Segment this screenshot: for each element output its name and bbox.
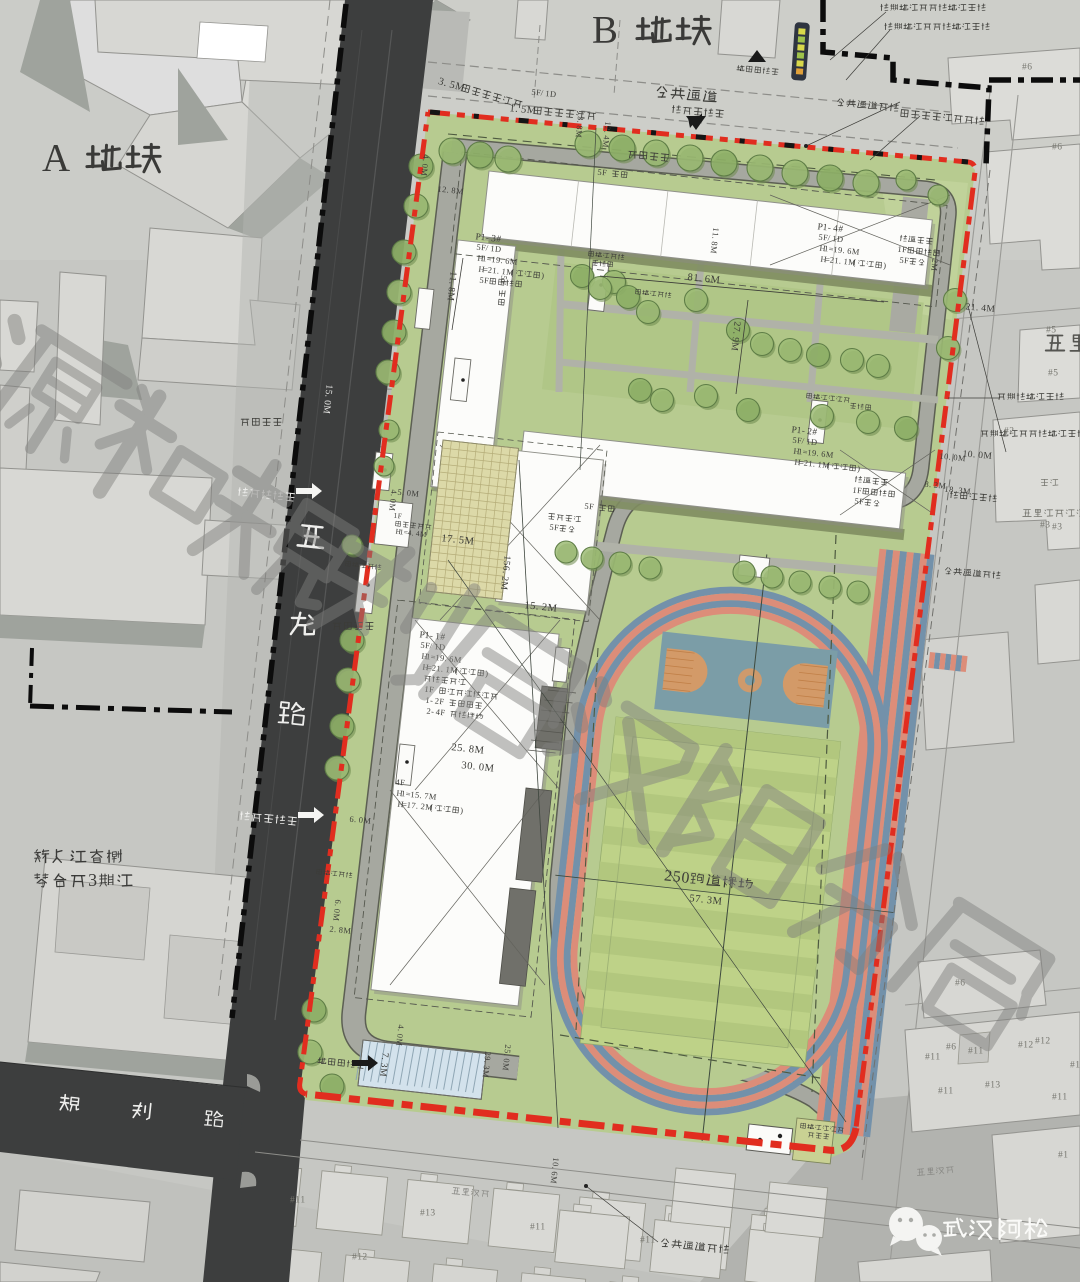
- svg-text:M: M: [729, 342, 740, 352]
- svg-text:M: M: [712, 896, 723, 908]
- svg-text:6: 6: [1057, 142, 1062, 152]
- svg-text:D: D: [811, 438, 818, 448]
- svg-text:D: D: [550, 90, 557, 100]
- svg-text:M: M: [456, 187, 465, 197]
- svg-text:M: M: [958, 454, 967, 464]
- svg-text:2: 2: [1028, 1040, 1033, 1050]
- svg-text:M: M: [377, 1068, 388, 1078]
- svg-text:M: M: [343, 926, 352, 936]
- svg-text:M: M: [986, 304, 996, 315]
- svg-text:3: 3: [995, 1080, 1000, 1090]
- svg-text:M: M: [363, 816, 372, 826]
- svg-text:2: 2: [1009, 426, 1014, 436]
- svg-text:M: M: [547, 603, 558, 615]
- svg-text:M: M: [501, 1063, 511, 1072]
- svg-text:M: M: [419, 168, 429, 177]
- svg-text:M: M: [929, 263, 939, 272]
- svg-text:A: A: [42, 136, 70, 179]
- svg-text:M: M: [387, 503, 397, 512]
- svg-text:1: 1: [650, 1235, 655, 1245]
- svg-text:D: D: [837, 235, 844, 245]
- svg-text:5: 5: [1051, 325, 1056, 335]
- svg-text:M: M: [601, 140, 611, 149]
- svg-text:1: 1: [1075, 1060, 1080, 1070]
- svg-text:M: M: [411, 489, 420, 499]
- svg-text:M: M: [710, 274, 721, 286]
- svg-text:1: 1: [935, 1052, 940, 1062]
- svg-text:M: M: [983, 451, 993, 462]
- svg-text:M: M: [331, 913, 341, 922]
- svg-text:M: M: [484, 763, 495, 775]
- svg-text:1: 1: [540, 1222, 545, 1232]
- svg-text:M: M: [709, 246, 719, 255]
- svg-text:1: 1: [1063, 1150, 1068, 1160]
- svg-text:D: D: [495, 245, 502, 255]
- svg-text:3: 3: [88, 870, 97, 890]
- svg-text:M: M: [394, 1038, 404, 1047]
- svg-text:6: 6: [951, 1042, 956, 1052]
- svg-text:M: M: [321, 405, 332, 415]
- svg-text:2: 2: [1045, 1036, 1050, 1046]
- svg-text:M: M: [549, 1176, 559, 1185]
- svg-text:M: M: [481, 1070, 491, 1079]
- svg-text:3: 3: [430, 1208, 435, 1218]
- svg-text:M: M: [574, 130, 584, 139]
- svg-text:M: M: [963, 487, 972, 497]
- svg-text:5: 5: [1053, 368, 1058, 378]
- svg-text:M: M: [498, 581, 509, 591]
- svg-text:1: 1: [948, 1086, 953, 1096]
- svg-text:3: 3: [1045, 520, 1050, 530]
- svg-text:M: M: [474, 745, 485, 757]
- svg-text:3: 3: [1057, 522, 1062, 532]
- svg-text:1: 1: [300, 1195, 305, 1205]
- svg-text:6: 6: [1027, 62, 1032, 72]
- svg-text:B: B: [592, 8, 618, 51]
- svg-text:1: 1: [1062, 1092, 1067, 1102]
- svg-text:M: M: [445, 292, 456, 302]
- svg-text:2: 2: [362, 1252, 367, 1262]
- svg-text:M: M: [464, 536, 475, 548]
